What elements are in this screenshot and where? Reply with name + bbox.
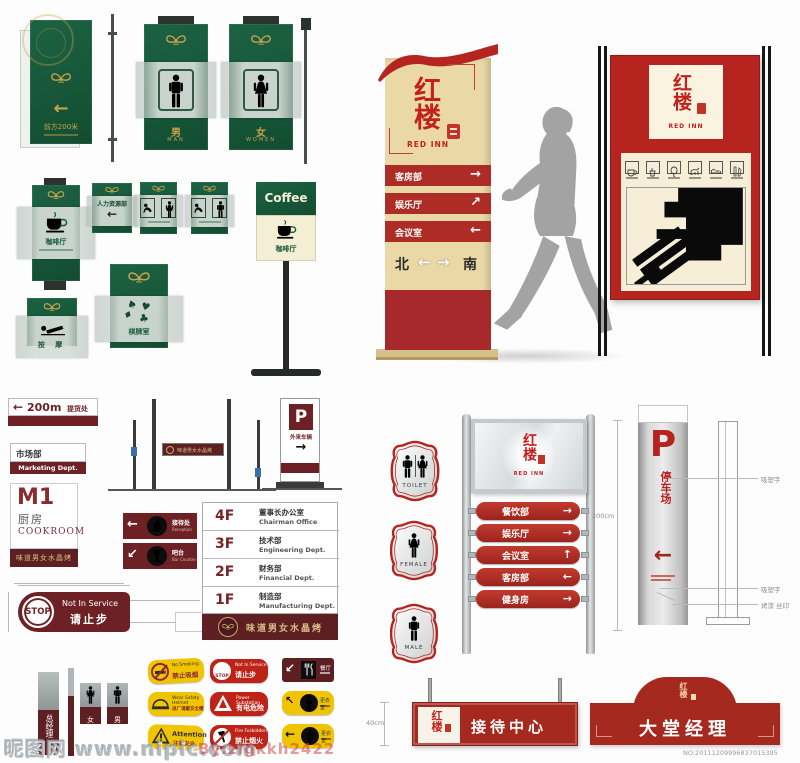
toilet-female-glass — [221, 62, 301, 118]
frame-pole — [227, 399, 231, 489]
no-smoking-cn: 禁止吸烟 — [172, 669, 198, 680]
slat-label: 会议室 — [502, 549, 529, 562]
info-board: 红楼 RED INN — [610, 55, 760, 300]
man-icon — [216, 201, 225, 218]
seal-mark — [450, 128, 457, 130]
marketing-sign-bar: Marketing Dept. — [10, 462, 86, 474]
woman-icon — [253, 74, 269, 108]
brand-crest-icon — [202, 185, 217, 193]
man-icon — [168, 74, 184, 108]
toilet-plaque-b-glass — [185, 195, 234, 227]
stop-mini-roundel: STOP — [213, 662, 231, 680]
fine-print-line — [651, 579, 671, 581]
dimension-line — [8, 592, 9, 632]
slat-lug — [468, 574, 476, 580]
toilet-male-en: MAN — [144, 137, 208, 143]
pickup-sign: ← 200m 提货处 — [8, 398, 98, 416]
brand-crest-icon — [46, 190, 66, 201]
arrow-left: ← — [418, 253, 431, 271]
pylon-dir-row: 会议室 ← — [385, 221, 491, 242]
arrow-right: → — [563, 592, 572, 605]
dept-cn: 董事长办公室 — [259, 507, 304, 518]
pylon-dir-row: 客房部 → — [385, 165, 491, 186]
sub-label-line — [39, 249, 73, 251]
p-letter: P — [295, 407, 307, 427]
bar-dir-sign: ↙ 吧台 Bar Counter — [123, 543, 197, 569]
m1-banner: 味道男女水晶烤 — [10, 549, 78, 567]
arrow-left: ← — [470, 223, 481, 238]
floor-number: 1F — [215, 592, 234, 608]
helmet-sign: Wear Safety Helmet 进厂请戴安全帽 — [148, 692, 204, 716]
brand-crest-icon — [249, 34, 273, 47]
slat-lug — [581, 574, 589, 580]
arrow-down-left: ↙ — [285, 661, 295, 675]
dir-cn: 吧台 — [172, 548, 184, 557]
canteen-label: 餐厅 — [320, 664, 331, 672]
pylon-top-outline — [638, 405, 688, 423]
mini-male-label: 男 — [114, 716, 121, 724]
stand-base — [251, 369, 321, 376]
board-pole — [762, 46, 765, 356]
floor-number: 3F — [215, 536, 234, 552]
stop-en: Not In Service — [62, 599, 118, 608]
dir-label: 客房部 — [395, 170, 422, 183]
sub-label-line — [44, 134, 78, 136]
p-box: P — [289, 404, 313, 430]
bed-icon — [709, 161, 723, 174]
mini-top — [80, 683, 101, 707]
dimension-line — [14, 583, 124, 584]
pole-dir-slat: 餐饮部 → — [476, 502, 580, 520]
stop-mini-sign: STOP Not In Service 请止步 — [210, 659, 268, 683]
arrow-right: → — [281, 440, 321, 455]
icon-caption-lines — [626, 177, 638, 179]
pylon-body: 红楼 RED INN 客房部 → 娱乐厅 ↗ 会议室 ← 北 ← → 南 — [385, 58, 491, 350]
arrow-left: ← — [30, 98, 92, 119]
slat-lug — [468, 552, 476, 558]
marketing-cn: 市场部 — [16, 448, 42, 460]
stop-mini-cn: 请止步 — [235, 670, 256, 680]
callout-label: 吸塑字 — [761, 584, 781, 594]
badge-female-label: FEMALE — [390, 562, 438, 568]
board-logo-seal — [697, 103, 706, 114]
m1-code: M1 — [17, 485, 54, 510]
pylon-base — [376, 349, 498, 360]
divider — [415, 455, 416, 477]
pole-dir-slat: 娱乐厅 → — [476, 524, 580, 542]
woman-icon — [86, 686, 95, 704]
m1-banner-text: 味道男女水晶烤 — [10, 549, 78, 563]
power-cn: 有电危险 — [236, 703, 264, 713]
pylon-bottom-band — [385, 290, 491, 350]
dir-label: 娱乐厅 — [395, 198, 422, 211]
distance-label: 前方200米 — [30, 122, 92, 132]
pole-clamp — [255, 468, 261, 477]
mini-bottom: 女 — [80, 707, 101, 724]
arrow-left: ← — [285, 727, 295, 741]
stand-pole — [283, 261, 289, 371]
pole-dir-slat: 客房部 ← — [476, 568, 580, 586]
helmet-cn: 进厂请戴安全帽 — [172, 706, 204, 712]
canteen-dir-sign: ↙ 餐厅 — [282, 658, 334, 682]
kettle-icon — [646, 161, 660, 174]
power-sign: Power Substation 有电危险 — [210, 692, 268, 716]
locker-dir-sign-1: ↖ 更衣室 — [282, 691, 334, 715]
coffee-stand-cn: 咖啡厅 — [257, 244, 315, 254]
pole-dir-slat: 健身房 → — [476, 590, 580, 608]
pickup-distance: 200m — [27, 401, 61, 414]
man-icon — [113, 686, 122, 704]
icon-roundel — [147, 546, 167, 566]
pylon-logo-cn: 红楼 — [411, 76, 438, 130]
arrow-up-right: ↗ — [470, 195, 481, 210]
floor-number: 4F — [215, 508, 234, 524]
callout-line — [672, 604, 758, 605]
arrow-left: ← — [563, 570, 572, 583]
visitor-parking-sign: P 外来车辆 → — [280, 398, 320, 482]
icon-caption-lines — [668, 177, 680, 179]
badge-male-label: MALE — [390, 645, 438, 651]
slat-label: 餐饮部 — [502, 505, 529, 518]
dept-en: Manufacturing Dept. — [259, 602, 335, 610]
arrow-left: ← — [638, 543, 688, 568]
parking-label: 停车场 — [658, 471, 673, 504]
stop-word: STOP — [215, 674, 228, 679]
brand-crest-icon — [164, 34, 188, 47]
dimension-line — [617, 420, 618, 630]
hand-icon — [152, 518, 162, 533]
coffee-hang-glass: 咖啡厅 — [17, 207, 95, 259]
manager-sign-top — [38, 672, 59, 710]
directory-row: 2F 财务部 Financial Dept. — [203, 559, 339, 587]
dimension-box — [175, 612, 205, 632]
sub-label-line — [148, 221, 170, 223]
board-logo-panel: 红楼 RED INN — [649, 65, 723, 139]
arrow-down-left: ↙ — [127, 547, 138, 562]
pylon-side-base — [706, 617, 750, 625]
dir-en: Bar Counter — [172, 557, 196, 562]
marketing-en: Marketing Dept. — [10, 462, 86, 472]
slat-lug — [581, 508, 589, 514]
board-pole — [598, 46, 601, 356]
m1-en: COOKROOM — [18, 527, 85, 537]
goblet-icon — [151, 549, 163, 563]
green-200m-sign: ← 前方200米 — [30, 20, 92, 144]
dir-label: 会议室 — [395, 226, 422, 239]
power-triangle-icon — [214, 695, 232, 711]
toilet-male-glass — [136, 62, 216, 118]
badge-female: FEMALE — [390, 520, 438, 581]
stop-roundel: STOP — [22, 596, 54, 628]
frame-pole — [152, 399, 156, 489]
icon-caption-lines — [689, 177, 701, 179]
no-smoking-sign: No Smoking 禁止吸烟 — [147, 658, 204, 685]
cleaner-icon — [142, 203, 154, 214]
brand-crest-icon — [104, 186, 120, 195]
dept-en: Financial Dept. — [259, 574, 314, 582]
arrow-right: → — [563, 526, 572, 539]
banner-text: 味道男女水晶烤 — [246, 621, 323, 634]
arrow-up: ↑ — [563, 548, 572, 561]
seal-mark — [450, 133, 457, 135]
strip-text: 味道男女水晶烤 — [177, 447, 212, 454]
directory-row: 3F 技术部 Engineering Dept. — [203, 531, 339, 559]
compass-row: 北 ← → 南 — [385, 250, 491, 276]
sub-label-line — [199, 221, 221, 223]
callout-label: 烤漆 丝印 — [761, 600, 789, 610]
icon-box — [301, 661, 316, 679]
fine-print-line — [651, 575, 675, 577]
no-smoking-icon — [151, 662, 170, 681]
massage-label: 按 摩 — [16, 340, 88, 350]
stop-mini-en: Not In Service — [235, 663, 267, 668]
brand-crest-icon — [151, 185, 166, 193]
man-icon — [305, 696, 313, 711]
icon-roundel — [147, 516, 167, 536]
hanger-rod — [558, 678, 562, 704]
dept-cn: 财务部 — [259, 563, 282, 574]
reception-label: 接待中心 — [471, 716, 547, 737]
pole-dir-logo-cn: 红楼 — [521, 433, 536, 461]
slat-lug — [581, 530, 589, 536]
mount-pole — [304, 30, 307, 164]
signage-design-sheet: ← 前方200米 男 MAN 女 WOMEN 咖啡厅 — [0, 0, 800, 763]
teacup-icon — [625, 161, 639, 174]
badge-toilet: TOILET — [390, 440, 440, 502]
strip-sign: 味道男女水晶烤 — [162, 443, 224, 456]
icon-caption-lines — [710, 177, 722, 179]
arrow-left: ← — [87, 207, 137, 221]
slat-lug — [468, 596, 476, 602]
mini-female-label: 女 — [87, 716, 94, 724]
club-icon: ♣ — [138, 311, 150, 326]
dept-cn: 制造部 — [259, 591, 282, 602]
dimension-tick — [380, 745, 389, 746]
pole-dir-logo-seal — [538, 455, 545, 464]
dimension-label: 40cm — [366, 719, 384, 727]
reception-logo-panel: 红楼 — [418, 707, 460, 743]
icon-roundel — [300, 694, 318, 712]
floor-directory: 4F 董事长办公室 Chairman Office 3F 技术部 Enginee… — [202, 502, 338, 614]
watermark-author: By:zlgkkh2422 — [198, 740, 335, 758]
coffee-cup-icon — [276, 220, 297, 239]
frame-pole — [257, 420, 260, 489]
locker-label: 更衣室 — [320, 697, 334, 711]
site-map-graphic — [626, 187, 746, 285]
man-icon — [402, 455, 413, 478]
slat-lug — [581, 596, 589, 602]
woman-icon — [165, 201, 174, 218]
strip-logo-roundel — [166, 446, 174, 454]
callout-line — [660, 588, 758, 589]
marketing-sign: 市场部 — [10, 443, 86, 462]
slat-label: 健身房 — [502, 593, 529, 606]
pictogram-frame — [243, 69, 279, 111]
caption-line — [320, 705, 330, 707]
brand-crest-icon — [126, 271, 152, 285]
hr-dept-glass: 人力资源部 ← — [87, 196, 137, 226]
pictogram-frame — [212, 198, 227, 218]
balloon-icon — [667, 161, 681, 174]
dept-en: Engineering Dept. — [259, 546, 325, 554]
pole-cap — [301, 18, 311, 30]
stop-word: STOP — [25, 607, 50, 617]
callout-label: 吸塑字 — [761, 474, 781, 484]
pole-bracket — [108, 32, 117, 35]
pickup-label: 提货处 — [67, 404, 88, 414]
hanger-rod — [428, 678, 432, 704]
mini-toilet-female: 女 — [80, 683, 101, 724]
lobby-logo-seal — [691, 694, 696, 700]
massage-icon — [40, 322, 66, 336]
pylon-logo-seal — [447, 124, 460, 139]
coffee-stand-en: Coffee — [256, 191, 316, 205]
ground-line — [108, 489, 276, 491]
pictogram-frame — [158, 69, 194, 111]
arrow-left: ← — [127, 517, 138, 532]
toilet-female-en: WOMEN — [229, 137, 293, 143]
no-smoking-en: No Smoking — [172, 662, 199, 668]
lobby-label: 大堂经理 — [590, 715, 780, 741]
dimension-label: 200cm — [592, 512, 614, 520]
woman-icon — [408, 533, 420, 558]
m1-sign: M1 厨房 COOKROOM — [10, 483, 78, 549]
slat-lug — [468, 530, 476, 536]
arrow-left: ← — [13, 400, 23, 414]
glass-header-panel: 红楼 RED INN — [471, 419, 587, 493]
callout-line — [668, 478, 758, 479]
visitor-sign-band — [281, 463, 319, 473]
corner-ornament — [447, 64, 475, 90]
dimension-leader — [130, 600, 200, 601]
dimension-tick — [613, 420, 622, 421]
parking-p: P — [638, 425, 688, 465]
floor-number: 2F — [215, 564, 234, 580]
dimension-tick — [613, 630, 622, 631]
coffee-hang-label: 咖啡厅 — [17, 237, 95, 247]
helmet-en: Wear Safety Helmet — [172, 696, 202, 706]
arrow-right: → — [563, 504, 572, 517]
pole-clamp — [131, 447, 137, 456]
slat-label: 娱乐厅 — [502, 527, 529, 540]
lobby-logo-cn: 红楼 — [679, 682, 688, 698]
mini-toilet-male: 男 — [107, 683, 128, 724]
lobby-sign-board: 大堂经理 — [590, 703, 780, 745]
pole-dir-slat: 会议室 ↑ — [476, 546, 580, 564]
chess-room-label: 棋牌室 — [95, 327, 183, 337]
mini-top — [107, 683, 128, 707]
drink-icon — [730, 161, 744, 174]
stop-cn: 请止步 — [70, 611, 109, 627]
reception-logo-cn: 红楼 — [430, 710, 442, 732]
caption-line — [320, 672, 330, 674]
board-logo-cn: 红楼 — [671, 73, 690, 111]
reception-logo-seal — [445, 724, 451, 732]
icon-caption-lines — [647, 177, 659, 179]
serial-number: NO:20111209996837015395 — [683, 749, 778, 757]
stop-sign: STOP Not In Service 请止步 — [18, 592, 130, 632]
mini-bottom: 男 — [107, 707, 128, 724]
pictogram-frame — [191, 198, 206, 218]
board-info-panel — [621, 153, 751, 291]
compass-south: 南 — [463, 254, 477, 274]
ground-line — [262, 488, 342, 490]
m1-cn: 厨房 — [18, 511, 44, 527]
board-pole — [604, 46, 607, 356]
reception-sign: 红楼 接待中心 — [412, 702, 578, 746]
dimension-leader — [130, 622, 175, 623]
diamond-icon: ♦ — [121, 309, 134, 323]
arrow-right: → — [437, 253, 450, 271]
directory-row: 4F 董事长办公室 Chairman Office — [203, 503, 339, 531]
coffee-cup-icon — [45, 212, 68, 233]
brand-crest-icon — [221, 623, 235, 631]
man-icon — [408, 616, 420, 641]
facility-icon-row — [625, 161, 747, 187]
directory-row: 1F 制造部 Manufacturing Dept. — [203, 587, 339, 615]
board-logo-en: RED INN — [649, 123, 723, 130]
ornament-swirl — [36, 28, 66, 58]
pictogram-frame — [161, 198, 176, 218]
chess-room-glass: ♠ ♥ ♦ ♣ 棋牌室 — [95, 296, 183, 342]
coffee-stand-header: Coffee — [256, 182, 316, 215]
badge-toilet-label: TOILET — [390, 483, 440, 489]
dept-en: Chairman Office — [259, 518, 317, 526]
massage-glass: 按 摩 — [16, 316, 88, 358]
pylon-dir-row: 娱乐厅 ↗ — [385, 193, 491, 214]
coffee-stand-body: 咖啡厅 — [256, 215, 316, 261]
arrow-right: → — [470, 167, 481, 182]
pickup-sign-bar — [8, 416, 98, 426]
board-pole — [768, 46, 771, 356]
dimension-tick — [380, 702, 389, 703]
woman-icon — [417, 455, 428, 478]
compass-north: 北 — [395, 254, 409, 274]
pylon-logo-en: RED INN — [393, 140, 463, 149]
badge-male: MALE — [390, 603, 438, 664]
cutlery-icon — [302, 663, 315, 676]
cleaner-icon — [193, 203, 205, 214]
pictogram-frame — [140, 198, 155, 218]
slat-lug — [468, 508, 476, 514]
slat-lug — [581, 552, 589, 558]
icon-caption-lines — [731, 177, 743, 179]
slat-label: 客房部 — [502, 571, 529, 584]
coffee-hang-bracket — [44, 281, 66, 290]
brand-crest-icon — [49, 72, 73, 85]
dimension-line — [18, 585, 130, 586]
pet-icon — [688, 161, 702, 174]
banner-logo-roundel — [218, 617, 238, 637]
dir-cn: 接待处 — [172, 518, 190, 527]
dir-en: Reception — [172, 527, 192, 532]
directory-banner: 味道男女水晶烤 — [202, 614, 338, 640]
pole-dir-logo-en: RED INN — [501, 471, 557, 477]
reception-dir-sign: ← 接待处 Reception — [123, 513, 197, 539]
dept-cn: 技术部 — [259, 535, 282, 546]
toilet-plaque-a-glass — [134, 195, 183, 227]
brand-crest-icon — [42, 302, 62, 313]
helmet-icon — [151, 696, 170, 711]
pole-bracket — [108, 138, 117, 141]
arrow-up-left: ↖ — [285, 694, 294, 707]
